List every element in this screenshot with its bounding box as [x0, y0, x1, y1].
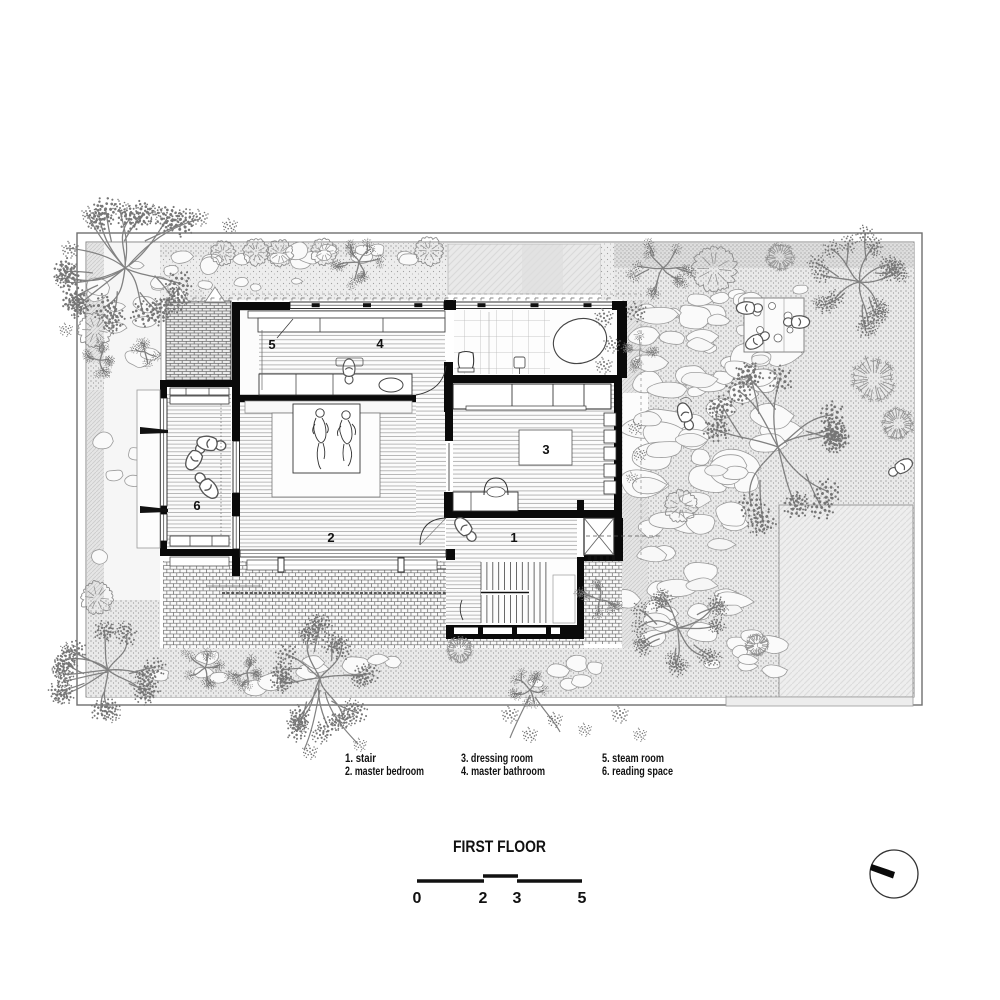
- svg-text:2: 2: [327, 530, 334, 545]
- svg-text:5. steam room: 5. steam room: [602, 753, 664, 765]
- svg-text:6. reading space: 6. reading space: [602, 766, 673, 778]
- svg-text:5: 5: [578, 890, 587, 907]
- svg-text:3: 3: [542, 442, 549, 457]
- svg-text:6: 6: [193, 498, 200, 513]
- svg-text:1. stair: 1. stair: [345, 753, 376, 765]
- svg-text:3: 3: [513, 890, 522, 907]
- svg-text:FIRST FLOOR: FIRST FLOOR: [453, 837, 546, 856]
- svg-text:5: 5: [268, 337, 275, 352]
- svg-text:2: 2: [479, 890, 488, 907]
- svg-text:3. dressing room: 3. dressing room: [461, 753, 533, 765]
- svg-text:4. master bathroom: 4. master bathroom: [461, 766, 545, 778]
- svg-text:2. master bedroom: 2. master bedroom: [345, 766, 424, 778]
- svg-text:0: 0: [413, 890, 422, 907]
- svg-text:1: 1: [510, 530, 517, 545]
- svg-text:4: 4: [376, 336, 384, 351]
